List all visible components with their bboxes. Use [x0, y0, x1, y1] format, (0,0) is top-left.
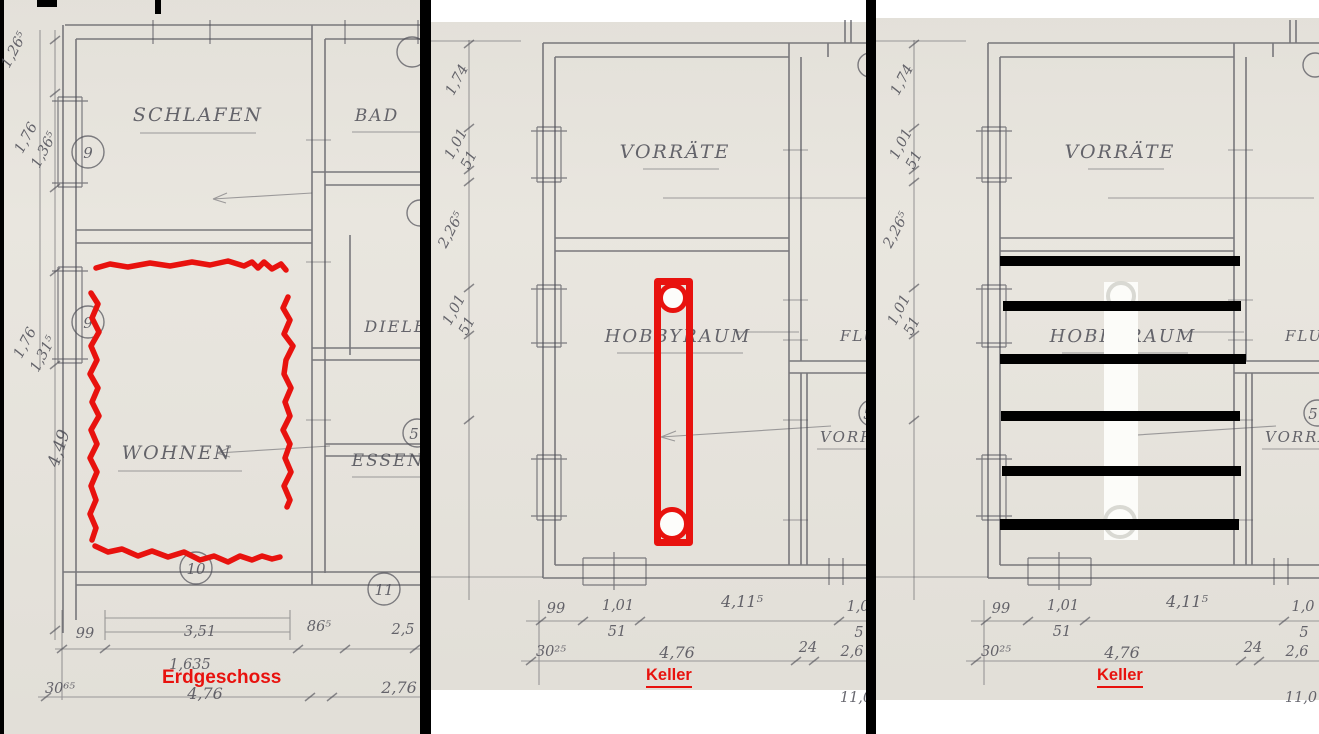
- panel-keller-1: 5 VORRÄTE HOBBYRAUM FLUR VORRAT 1,74 1,0…: [431, 0, 866, 734]
- keller-2-drawing: 5 VORRÄTE HOBBYRAUM FLUR VORRAT 1,74 1,0…: [876, 0, 1319, 734]
- dim-left: 1,74: [443, 62, 472, 98]
- redaction-bar: [1000, 354, 1246, 364]
- dim-bottom: 4,11⁵: [720, 592, 764, 611]
- dim-bottom: 1,0: [1291, 599, 1314, 615]
- dim-bottom: 86⁵: [307, 619, 331, 635]
- room-label-hobbyraum: HOBBYRAUM: [604, 326, 752, 347]
- dim-bottom: 11,0: [1285, 690, 1317, 706]
- room-number-circles: [1303, 53, 1319, 426]
- room-label-essen: ESSEN: [351, 451, 420, 471]
- dim-bottom: 30⁶⁵: [45, 681, 75, 697]
- red-outline-annotation: [90, 261, 293, 562]
- dim-left: 2,26⁵: [880, 209, 913, 251]
- dim-bottom: 51: [608, 624, 626, 640]
- dim-bottom: 2,5: [390, 622, 414, 638]
- dim-bottom: 24: [798, 640, 817, 656]
- room-label-vorrat: VORRAT: [1265, 428, 1319, 446]
- room-number: 5: [409, 425, 419, 443]
- dim-left: 1,74: [888, 62, 917, 98]
- room-label-schlafen: SCHLAFEN: [133, 104, 263, 126]
- dim-bottom: 30²⁵: [981, 644, 1011, 660]
- erdgeschoss-thin-lines: [105, 140, 331, 640]
- window-symbols: [52, 20, 418, 363]
- dim-bottom: 3,51: [184, 624, 216, 640]
- dimension-ticks: [41, 36, 420, 701]
- dim-left: 2,26⁵: [435, 209, 468, 251]
- red-marker-annotation: [658, 282, 690, 543]
- keller-walls: [988, 20, 1319, 578]
- red-marker-circle-bottom: [658, 510, 687, 539]
- panel-keller-2: 5 VORRÄTE HOBBYRAUM FLUR VORRAT 1,74 1,0…: [876, 0, 1319, 734]
- room-number: 10: [186, 560, 206, 578]
- room-label-diele: DIELE: [363, 317, 420, 336]
- dim-bottom: 99: [992, 601, 1010, 617]
- dim-bottom: 99: [547, 601, 565, 617]
- room-number: 9: [83, 144, 93, 162]
- dim-bottom: 24: [1243, 640, 1262, 656]
- dim-bottom: 1,01: [1047, 598, 1079, 614]
- floor-caption-erdgeschoss: Erdgeschoss: [162, 667, 281, 689]
- dim-bottom: 2,6: [1284, 644, 1308, 660]
- room-label-bad: BAD: [354, 106, 399, 126]
- redaction-bar: [1000, 256, 1240, 266]
- panel-divider: [420, 0, 431, 734]
- room-label-vorrat: VORRAT: [820, 428, 866, 446]
- dim-bottom: 99: [76, 626, 94, 642]
- room-number-circles: [858, 53, 866, 426]
- dim-bottom: 51: [1053, 624, 1071, 640]
- panel-erdgeschoss: 9 9 10 11 5 SCHLAFEN BAD DIELE ESSEN WOH…: [0, 0, 420, 734]
- dim-left: 4,49: [44, 427, 75, 470]
- redaction-bar: [1002, 466, 1241, 476]
- redaction-bar: [1001, 411, 1240, 421]
- dim-bottom: 11,0: [840, 690, 866, 706]
- room-label-flur: FLUR: [1284, 327, 1319, 345]
- floor-caption-keller-2: Keller: [1097, 666, 1143, 688]
- dim-bottom: 4,11⁵: [1165, 592, 1209, 611]
- dim-bottom: 1,01: [602, 598, 634, 614]
- dim-bottom: 4,76: [1103, 643, 1140, 662]
- dim-bottom: 5: [1299, 625, 1308, 641]
- room-label-vorraete: VORRÄTE: [1065, 140, 1176, 163]
- dim-bottom: 1,0: [846, 599, 866, 615]
- keller-walls: [543, 20, 866, 578]
- dimension-lines: [469, 40, 866, 685]
- room-label-flur: FLUR: [839, 327, 866, 345]
- dim-left: 51: [901, 314, 924, 338]
- dim-left: 1,26⁵: [0, 29, 31, 70]
- dim-left: 51: [903, 148, 926, 172]
- dim-bottom: 2,76: [380, 678, 417, 697]
- room-number: 11: [374, 581, 393, 599]
- dim-bottom: 5: [854, 625, 863, 641]
- redaction-bar: [1000, 519, 1239, 530]
- room-label-vorraete: VORRÄTE: [620, 140, 731, 163]
- floor-caption-keller-1: Keller: [646, 666, 692, 688]
- dim-bottom: 2,6: [839, 644, 863, 660]
- dim-left: 51: [458, 148, 481, 172]
- scanned-floorplan-composite: 9 9 10 11 5 SCHLAFEN BAD DIELE ESSEN WOH…: [0, 0, 1319, 734]
- room-number: 5: [1308, 405, 1318, 423]
- erdgeschoss-drawing: 9 9 10 11 5 SCHLAFEN BAD DIELE ESSEN WOH…: [0, 0, 420, 734]
- dim-left: 51: [456, 314, 479, 338]
- red-marker-circle-top: [661, 286, 686, 311]
- keller-1-drawing: 5 VORRÄTE HOBBYRAUM FLUR VORRAT 1,74 1,0…: [431, 0, 866, 734]
- dim-bottom: 4,76: [658, 643, 695, 662]
- redaction-bar: [1003, 301, 1241, 311]
- room-label-wohnen: WOHNEN: [122, 442, 233, 464]
- dim-bottom: 30²⁵: [536, 644, 566, 660]
- panel-divider: [866, 0, 876, 734]
